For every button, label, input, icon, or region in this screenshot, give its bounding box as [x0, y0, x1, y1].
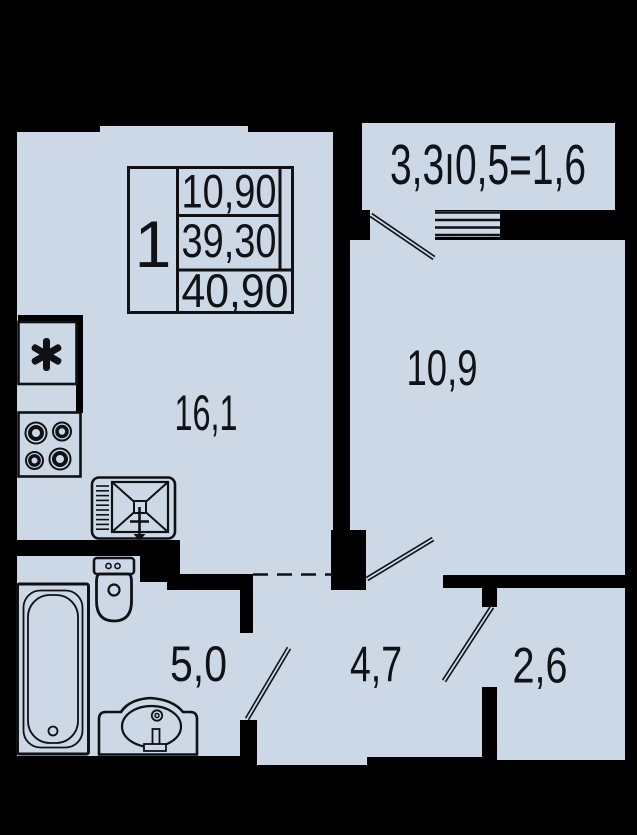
floor-plan-canvas: 1 10,90 39,30 40,90 3,3ı0,5=1,6 16,1 10,… [0, 0, 637, 835]
hallway-area-label: 4,7 [350, 637, 402, 693]
balcony-area-label: 3,3ı0,5=1,6 [390, 133, 586, 197]
wall-kitchen-bathroom [0, 540, 180, 556]
bedroom-floor [350, 240, 625, 575]
wall-stub-bedroom-door [331, 530, 366, 590]
bedroom-area-label: 10,9 [407, 340, 478, 396]
entry-threshold-notch [257, 757, 367, 765]
rooms-count: 1 [135, 207, 172, 281]
kitchen-living-floor [17, 132, 333, 540]
kitchen-living-area-label: 16,1 [175, 385, 238, 441]
bathroom-area-label: 5,0 [170, 636, 227, 692]
area-value: 39,30 [182, 214, 277, 267]
wall-stub-bathroom-door [240, 720, 257, 757]
balcony-window-icon [435, 211, 500, 237]
wardrobe-area-label: 2,6 [513, 638, 568, 694]
wall-bathroom-hallway [167, 574, 253, 590]
bathroom-doorway-gap [240, 633, 253, 720]
floor-plan-svg: 1 10,90 39,30 40,90 3,3ı0,5=1,6 16,1 10,… [0, 0, 637, 835]
window-glass [435, 211, 500, 237]
total-area-value: 40,90 [182, 264, 289, 317]
living-area-value: 10,90 [182, 165, 277, 218]
